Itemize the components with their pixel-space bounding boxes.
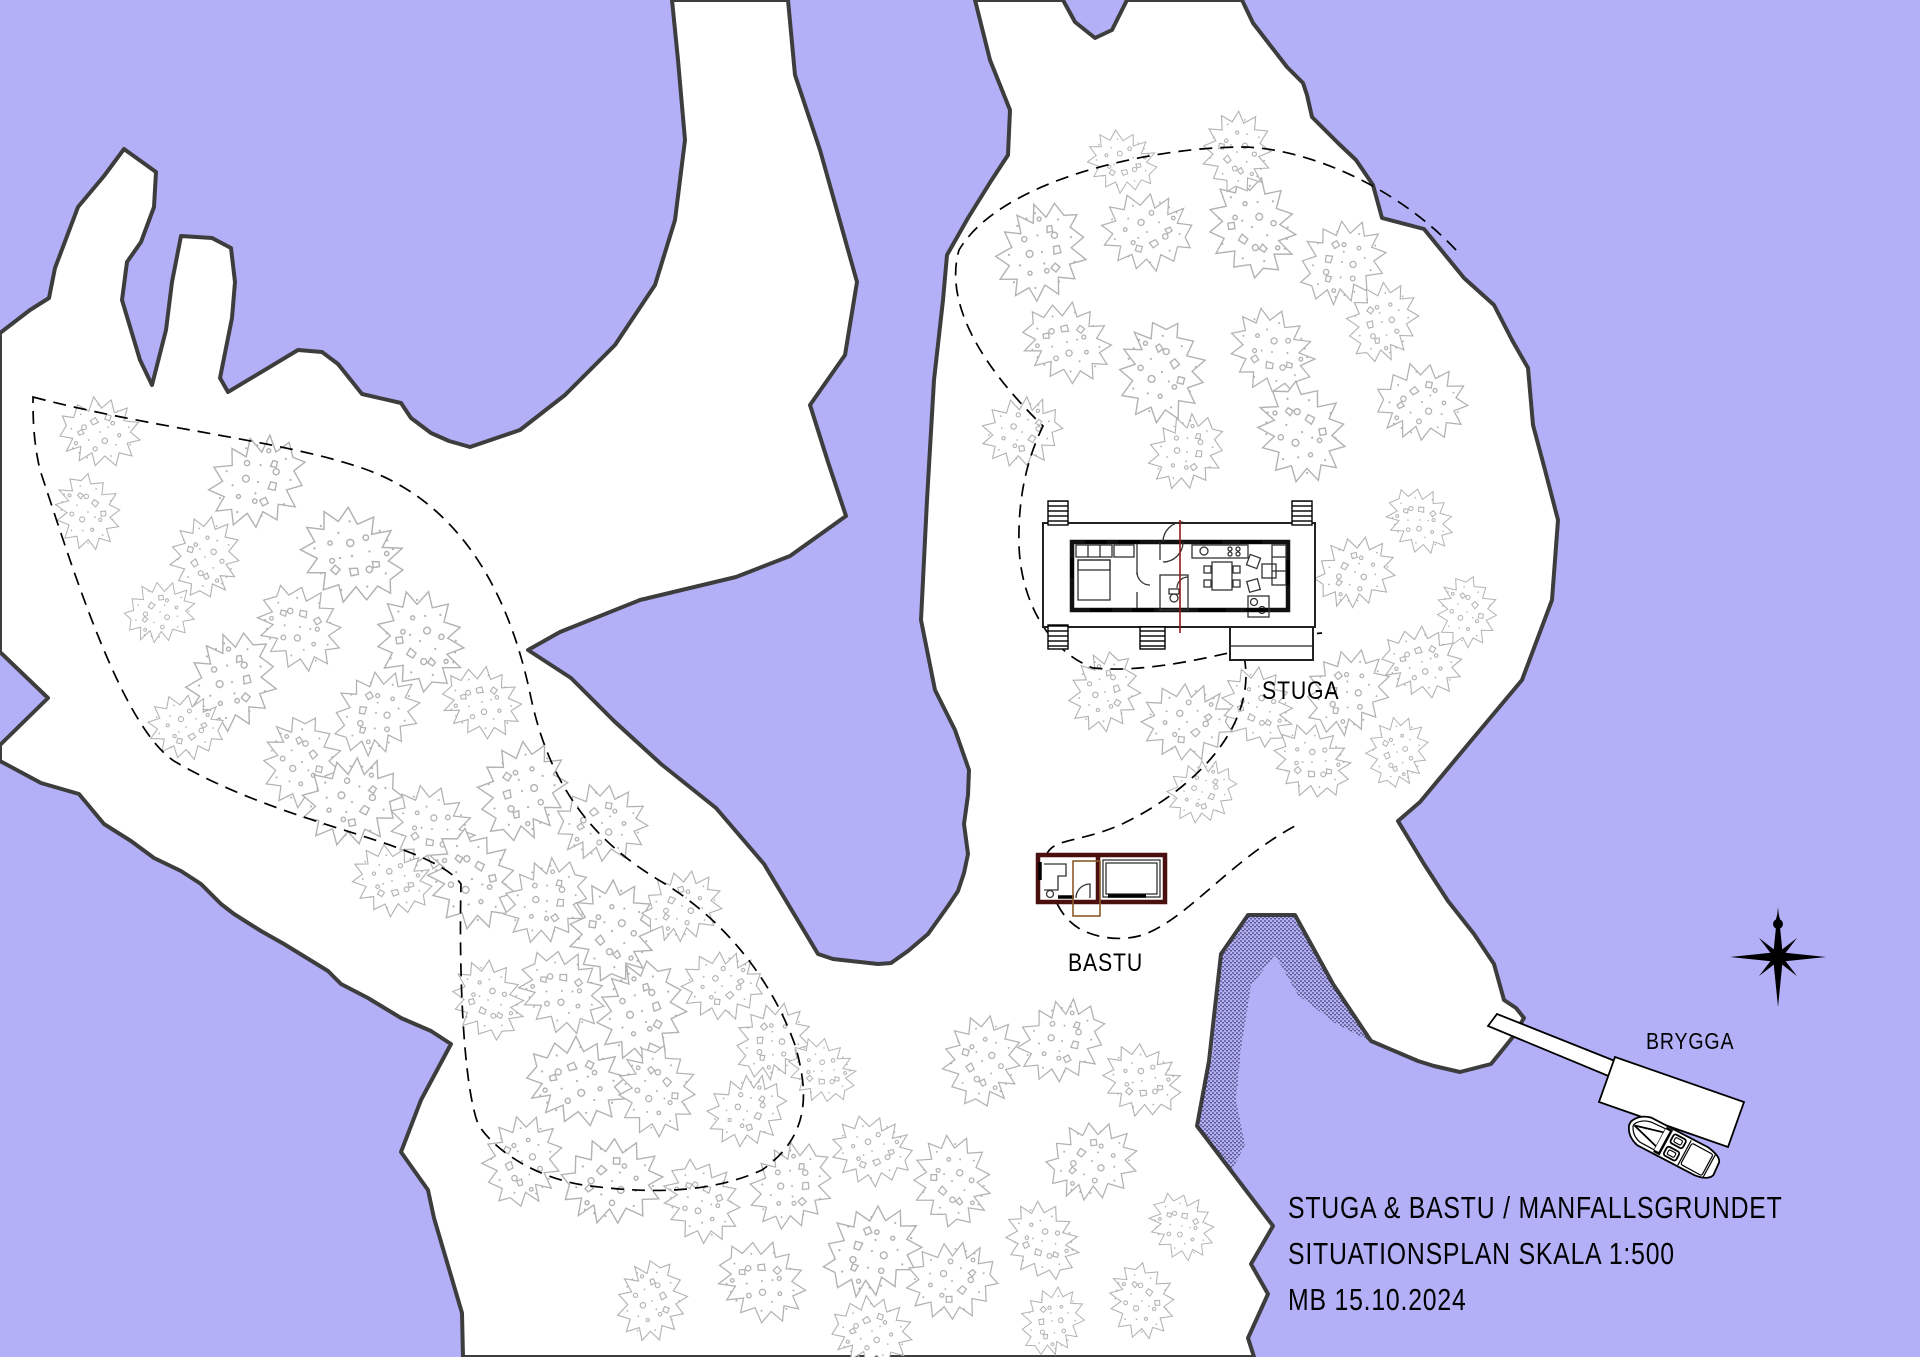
stuga-deck-extension (1230, 627, 1313, 660)
stuga-label: STUGA (1262, 676, 1339, 704)
site-plan-page: STUGA BASTU BRYGGA STUGA & BASTU / MANFA… (0, 0, 1920, 1357)
bastu-label: BASTU (1068, 948, 1143, 976)
title-line-author-date: MB 15.10.2024 (1288, 1282, 1467, 1316)
title-line-plan-scale: SITUATIONSPLAN SKALA 1:500 (1288, 1236, 1675, 1270)
title-line-project: STUGA & BASTU / MANFALLSGRUNDET (1288, 1190, 1783, 1224)
brygga-label: BRYGGA (1646, 1029, 1734, 1055)
